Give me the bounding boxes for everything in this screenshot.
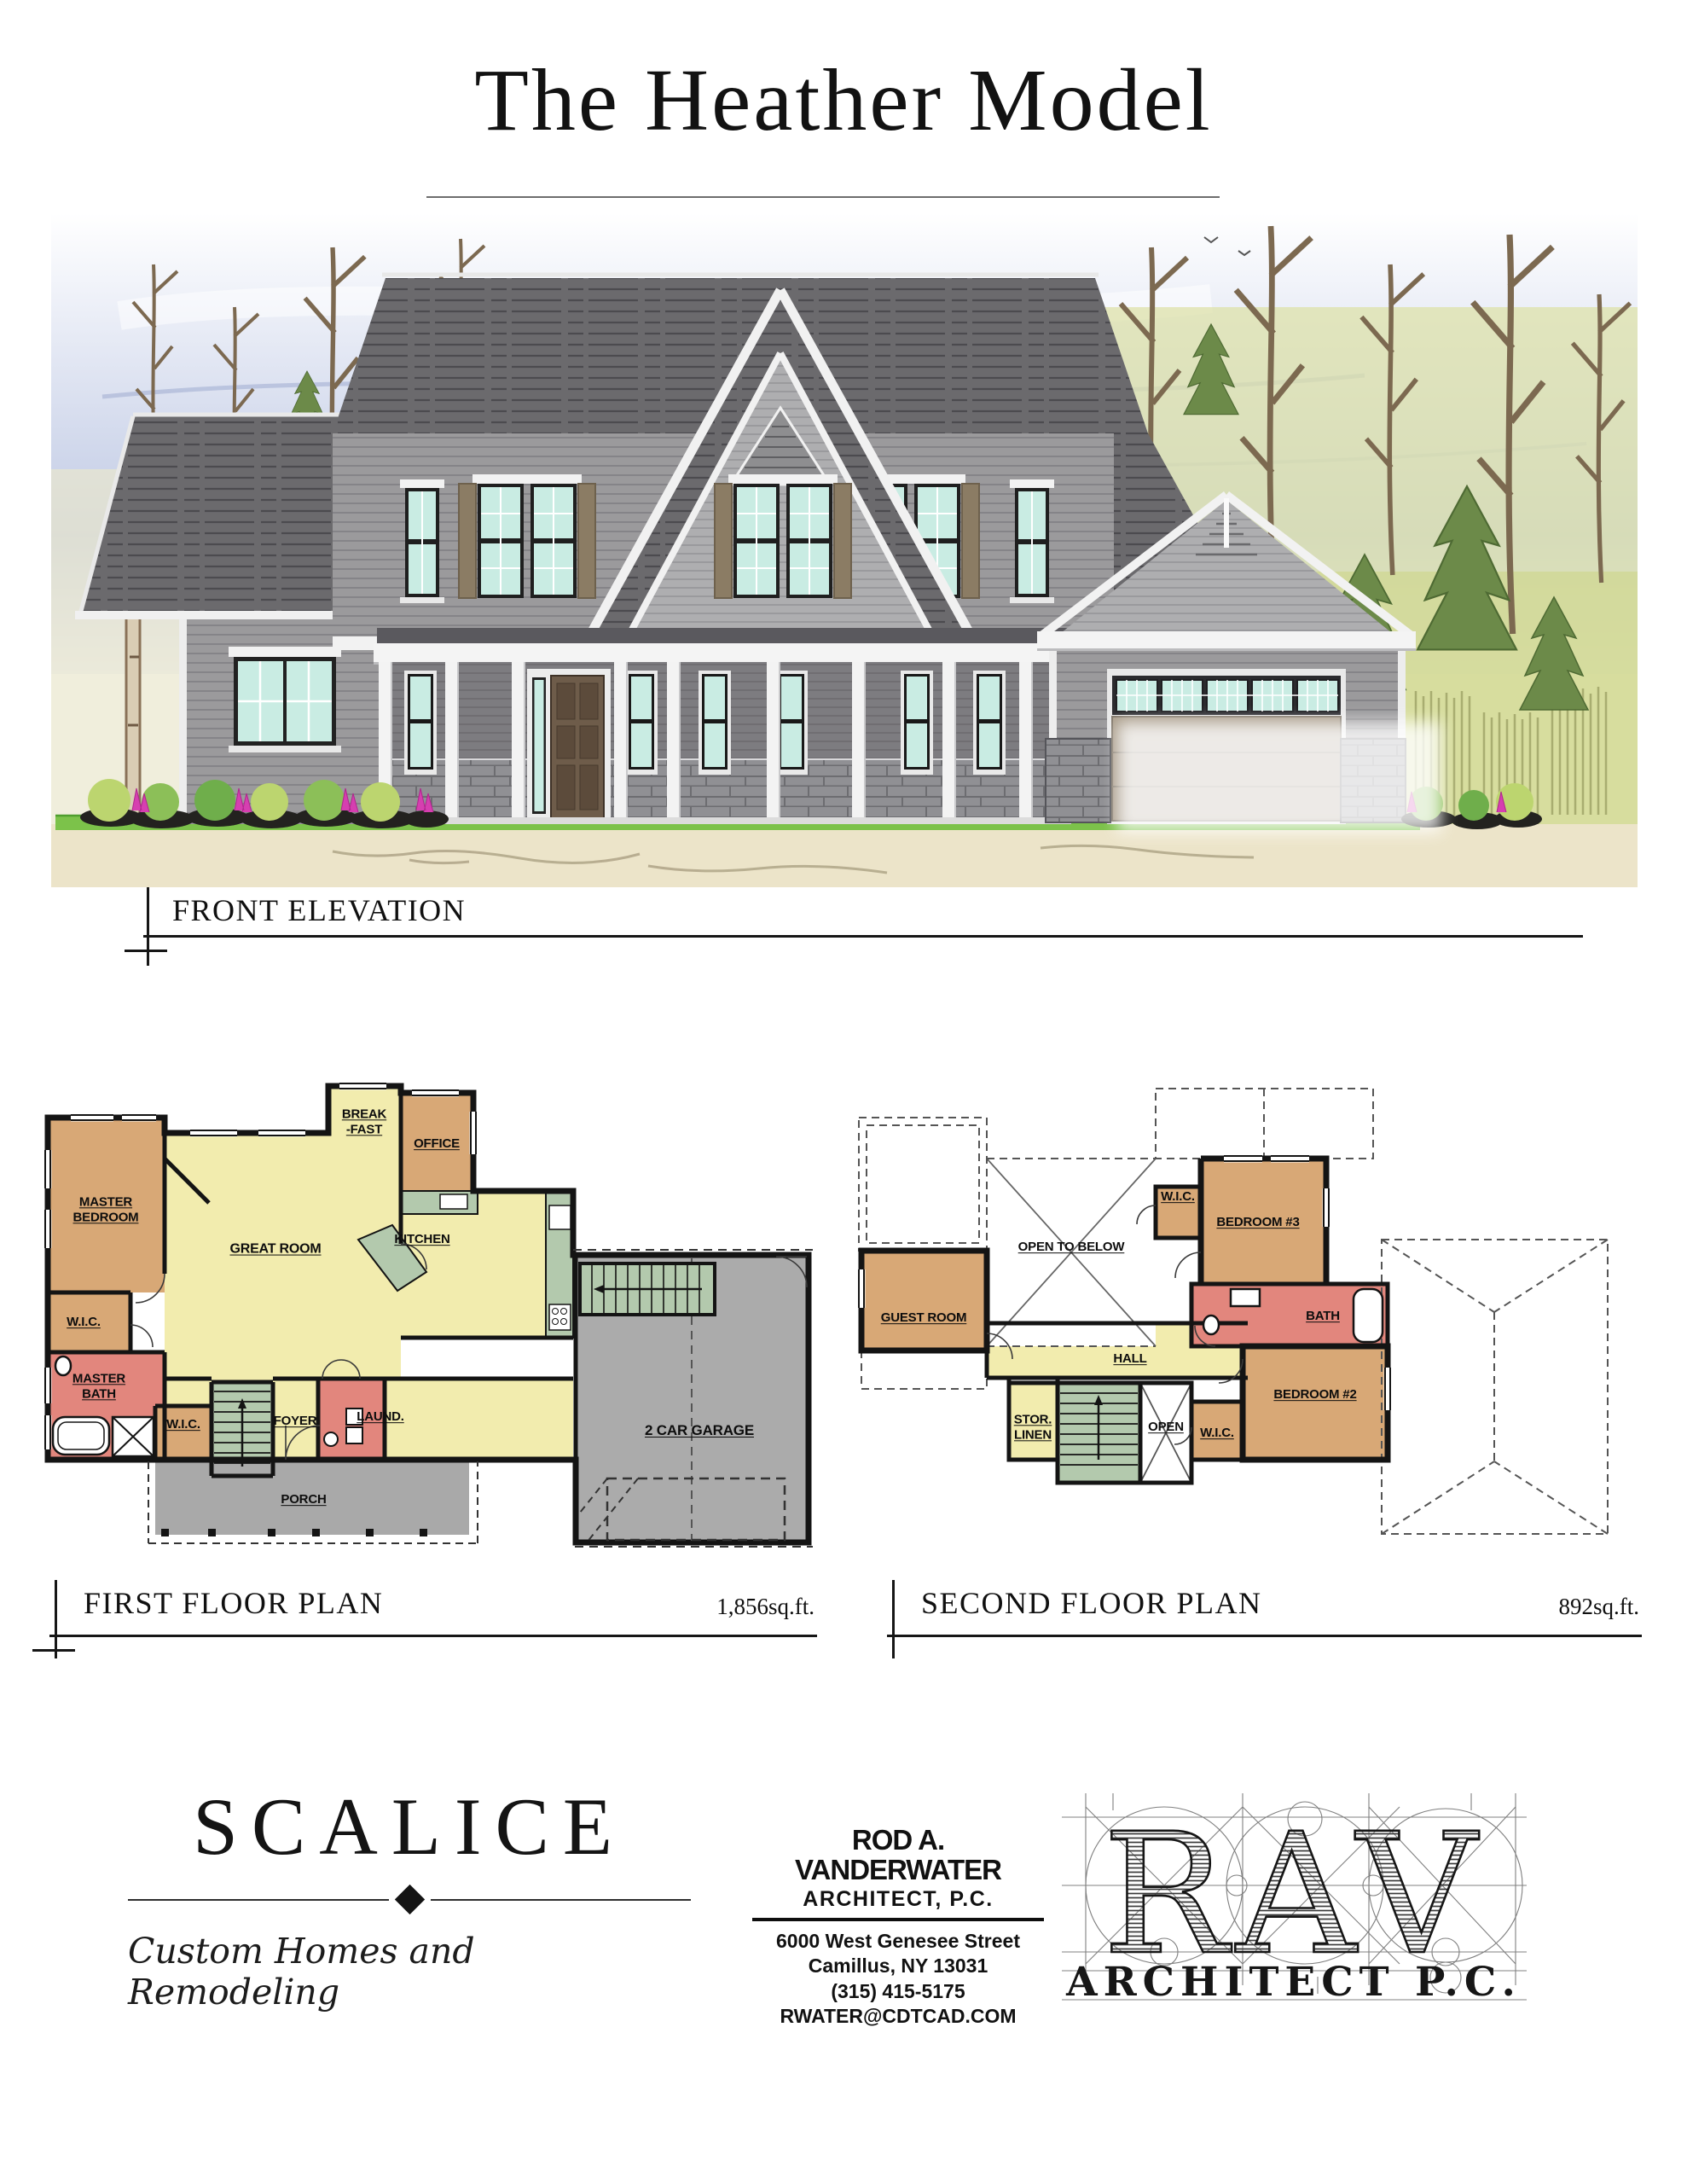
architect-info: ROD A. VANDERWATER ARCHITECT, P.C. 6000 … <box>752 1826 1044 2029</box>
first-floor-area: 1,856sq.ft. <box>597 1594 815 1620</box>
elevation-underline-tick <box>125 950 167 952</box>
room-label-wic2: W.I.C. <box>166 1417 200 1432</box>
room-label-kitchen: KITCHEN <box>394 1232 449 1247</box>
rav-subtitle: ARCHITECT P.C. <box>1065 1959 1522 2002</box>
rav-logo: RAV ARCHITECT P.C. <box>1062 1785 1527 2002</box>
room-label-master-bedroom: MASTER BEDROOM <box>73 1194 139 1224</box>
room-label-wic-bed3: W.I.C. <box>1161 1189 1195 1205</box>
room-label-office: OFFICE <box>414 1136 460 1152</box>
front-elevation-illustration <box>51 213 1638 887</box>
room-label-hall: HALL <box>1113 1351 1146 1367</box>
second-floor-section-title: SECOND FLOOR PLAN <box>921 1585 1262 1621</box>
room-label-wic-bed2: W.I.C. <box>1200 1426 1234 1441</box>
room-label-wic: W.I.C. <box>67 1315 101 1330</box>
elevation-tick <box>147 887 149 966</box>
room-label-breakfast: BREAK -FAST <box>342 1107 386 1136</box>
first-floor-underline <box>49 1635 817 1637</box>
architect-address1: 6000 West Genesee Street <box>752 1929 1044 1954</box>
room-label-porch: PORCH <box>281 1492 326 1507</box>
room-label-laundry: LAUND. <box>357 1409 403 1425</box>
second-floor-underline <box>887 1635 1642 1637</box>
architect-firm: ARCHITECT, P.C. <box>752 1887 1044 1912</box>
stone-pier <box>1046 739 1110 822</box>
builder-name: SCALICE <box>193 1780 626 1873</box>
title-underline <box>426 196 1220 198</box>
page-title: The Heather Model <box>0 49 1687 151</box>
builder-divider <box>128 1889 691 1910</box>
room-label-open-to-below: OPEN TO BELOW <box>1018 1240 1125 1255</box>
room-label-bedroom3: BEDROOM #3 <box>1216 1215 1299 1230</box>
first-floor-tick <box>55 1580 57 1658</box>
diamond-icon <box>394 1885 424 1914</box>
builder-tagline: Custom Homes and Remodeling <box>128 1931 691 2013</box>
room-label-garage: 2 CAR GARAGE <box>645 1422 754 1439</box>
room-label-bath: BATH <box>1306 1309 1340 1324</box>
room-label-open-shaft: OPEN <box>1148 1420 1184 1435</box>
room-label-foyer: FOYER <box>274 1414 317 1429</box>
architect-phone: (315) 415-5175 <box>752 1979 1044 2004</box>
elevation-section-title: FRONT ELEVATION <box>172 892 466 928</box>
room-label-master-bath: MASTER BATH <box>72 1371 125 1401</box>
architect-divider <box>752 1918 1044 1921</box>
porch-fascia <box>374 643 1071 662</box>
architectural-sheet: { "header": { "title": "The Heather Mode… <box>0 0 1687 2184</box>
left-wing-window <box>229 647 341 752</box>
blurred-patch <box>1117 722 1441 833</box>
architect-name: ROD A. VANDERWATER <box>752 1826 1044 1885</box>
room-label-great-room: GREAT ROOM <box>229 1242 321 1258</box>
builder-logo: SCALICE Custom Homes and Remodeling <box>128 1780 691 2013</box>
room-label-bedroom2: BEDROOM #2 <box>1273 1387 1356 1403</box>
second-floor-area: 892sq.ft. <box>1416 1594 1639 1620</box>
room-label-stor-linen: STOR. LINEN <box>1014 1412 1052 1442</box>
first-floor-section-title: FIRST FLOOR PLAN <box>84 1585 383 1621</box>
front-door <box>527 669 611 821</box>
architect-email: RWATER@CDTCAD.COM <box>752 2004 1044 2029</box>
architect-address2: Camillus, NY 13031 <box>752 1954 1044 1978</box>
second-floor-tick <box>892 1580 895 1658</box>
first-floor-underline-tick <box>32 1649 75 1652</box>
ground <box>51 824 1638 887</box>
room-label-guest-room: GUEST ROOM <box>881 1310 967 1326</box>
elevation-underline <box>143 935 1583 938</box>
